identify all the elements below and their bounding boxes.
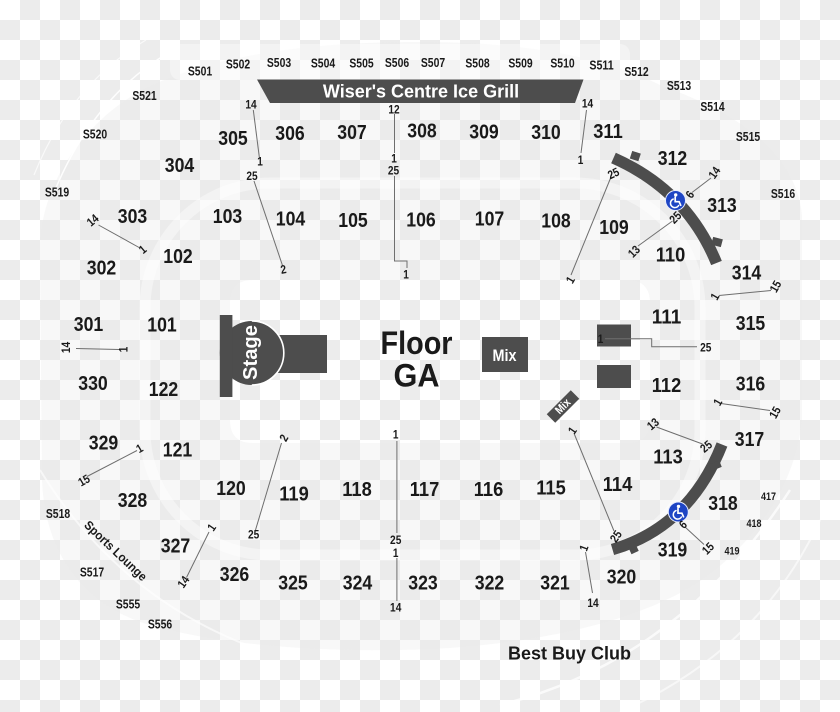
svg-text:1: 1 (393, 428, 399, 442)
svg-text:107: 107 (475, 208, 505, 231)
svg-text:S516: S516 (771, 186, 795, 201)
svg-text:S513: S513 (667, 78, 691, 93)
svg-text:119: 119 (279, 483, 309, 506)
svg-text:303: 303 (118, 205, 148, 228)
svg-text:318: 318 (708, 492, 738, 515)
svg-text:323: 323 (408, 572, 438, 595)
svg-text:319: 319 (658, 539, 688, 562)
svg-text:S520: S520 (83, 127, 107, 142)
svg-text:312: 312 (658, 147, 688, 170)
svg-text:1: 1 (393, 546, 399, 560)
svg-text:418: 418 (747, 518, 762, 530)
svg-text:S555: S555 (116, 597, 140, 612)
svg-text:118: 118 (342, 478, 372, 501)
svg-text:325: 325 (278, 572, 308, 595)
svg-text:329: 329 (89, 432, 119, 455)
svg-text:330: 330 (78, 372, 108, 395)
svg-text:317: 317 (735, 428, 765, 451)
svg-text:306: 306 (275, 122, 305, 145)
svg-text:326: 326 (220, 563, 250, 586)
svg-text:GA: GA (394, 358, 440, 394)
svg-text:S501: S501 (188, 64, 212, 79)
svg-text:112: 112 (652, 374, 682, 397)
svg-text:14: 14 (390, 601, 402, 615)
svg-text:Best Buy Club: Best Buy Club (508, 644, 631, 664)
svg-text:S521: S521 (132, 88, 156, 103)
svg-text:104: 104 (276, 208, 306, 231)
svg-text:324: 324 (343, 572, 373, 595)
svg-text:320: 320 (607, 566, 637, 589)
svg-text:S507: S507 (421, 55, 445, 70)
svg-text:25: 25 (246, 169, 258, 183)
svg-text:Floor: Floor (381, 325, 453, 361)
svg-text:S504: S504 (311, 56, 336, 71)
svg-text:109: 109 (599, 216, 629, 239)
svg-text:25: 25 (248, 528, 260, 542)
svg-text:103: 103 (213, 205, 243, 228)
svg-text:315: 315 (736, 312, 766, 335)
svg-text:106: 106 (406, 209, 436, 232)
svg-text:14: 14 (582, 97, 594, 111)
svg-text:114: 114 (603, 473, 633, 496)
svg-text:305: 305 (218, 127, 248, 150)
svg-text:1: 1 (403, 268, 409, 282)
svg-text:302: 302 (87, 257, 117, 280)
svg-text:S508: S508 (465, 56, 489, 71)
svg-text:Wiser's Centre Ice Grill: Wiser's Centre Ice Grill (323, 82, 519, 102)
svg-text:308: 308 (407, 120, 437, 143)
svg-text:S510: S510 (550, 56, 574, 71)
svg-text:Stage: Stage (239, 325, 262, 380)
svg-text:419: 419 (725, 546, 740, 558)
svg-text:25: 25 (388, 164, 400, 178)
svg-text:108: 108 (541, 210, 571, 233)
svg-text:S512: S512 (624, 64, 648, 79)
svg-text:105: 105 (338, 209, 368, 232)
svg-text:116: 116 (474, 478, 504, 501)
svg-text:S556: S556 (148, 617, 172, 632)
svg-text:122: 122 (149, 378, 179, 401)
svg-text:115: 115 (536, 477, 566, 500)
svg-text:121: 121 (163, 439, 193, 462)
svg-text:102: 102 (163, 245, 193, 268)
svg-text:S515: S515 (736, 129, 760, 144)
svg-text:S517: S517 (80, 565, 104, 580)
svg-text:113: 113 (653, 446, 683, 469)
svg-text:101: 101 (147, 314, 177, 337)
svg-text:1: 1 (598, 332, 604, 346)
svg-text:417: 417 (761, 491, 776, 503)
svg-text:S518: S518 (46, 506, 70, 521)
svg-text:25: 25 (700, 341, 712, 355)
svg-text:301: 301 (74, 313, 104, 336)
svg-text:S519: S519 (45, 185, 69, 200)
svg-text:310: 310 (531, 121, 561, 144)
svg-text:14: 14 (245, 98, 257, 112)
svg-text:307: 307 (337, 121, 367, 144)
svg-text:S506: S506 (385, 55, 409, 70)
svg-text:S509: S509 (508, 56, 532, 71)
svg-text:1: 1 (578, 153, 584, 167)
svg-text:14: 14 (587, 596, 599, 610)
svg-text:304: 304 (165, 154, 195, 177)
svg-text:25: 25 (390, 533, 402, 547)
svg-text:111: 111 (652, 306, 682, 329)
svg-text:1: 1 (117, 346, 131, 352)
svg-text:110: 110 (656, 244, 686, 267)
svg-text:S502: S502 (226, 57, 250, 72)
svg-text:117: 117 (410, 478, 440, 501)
svg-text:321: 321 (540, 572, 570, 595)
svg-text:S505: S505 (349, 56, 373, 71)
svg-text:1: 1 (257, 155, 263, 169)
svg-text:120: 120 (216, 477, 246, 500)
svg-text:314: 314 (732, 262, 762, 285)
svg-text:Mix: Mix (493, 346, 517, 365)
svg-text:327: 327 (161, 535, 191, 558)
svg-text:316: 316 (736, 373, 766, 396)
svg-text:313: 313 (707, 194, 737, 217)
svg-text:328: 328 (118, 489, 148, 512)
svg-text:14: 14 (59, 342, 73, 354)
svg-text:322: 322 (475, 572, 505, 595)
svg-text:309: 309 (469, 121, 499, 144)
svg-text:S503: S503 (267, 55, 291, 70)
svg-text:S514: S514 (700, 99, 725, 114)
svg-text:12: 12 (388, 103, 400, 117)
svg-text:S511: S511 (589, 58, 613, 73)
svg-text:311: 311 (593, 120, 623, 143)
